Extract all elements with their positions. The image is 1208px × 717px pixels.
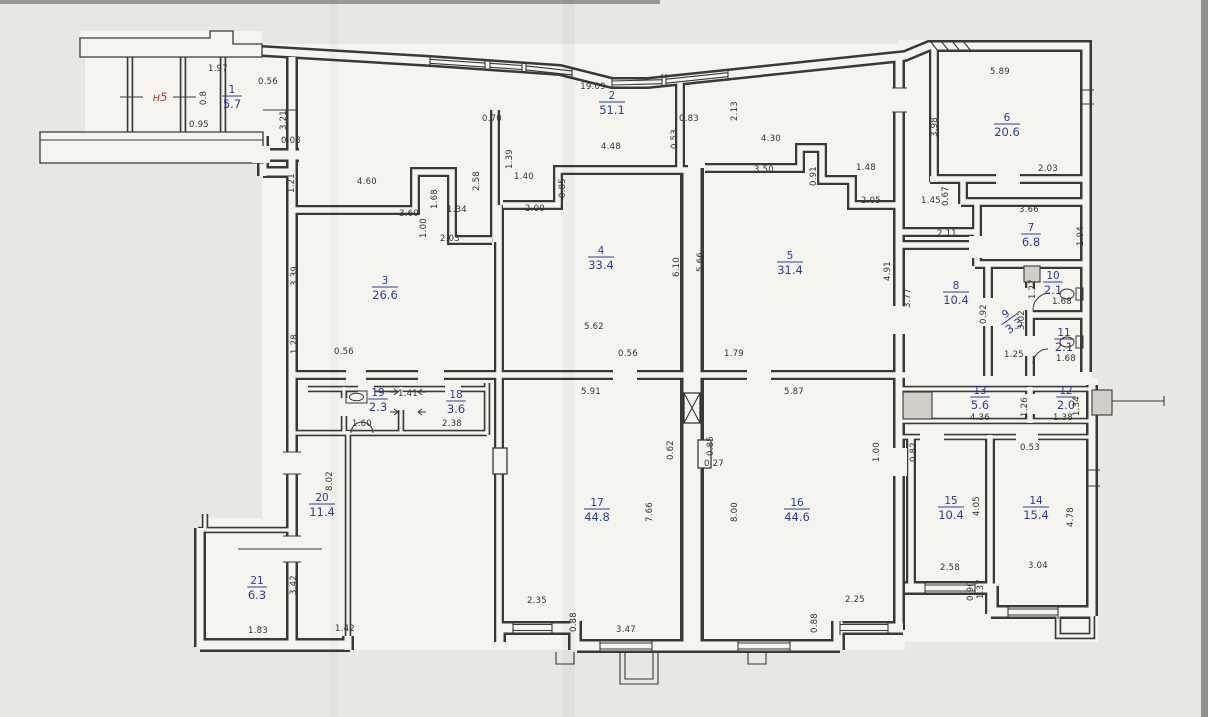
dim-label: 0.85 <box>558 178 568 198</box>
dim-label: 0.67 <box>941 186 951 206</box>
room-area: 10.4 <box>943 293 969 307</box>
dim-label: 0.56 <box>618 349 638 359</box>
room-number: 2 <box>609 90 616 102</box>
room-number: 10 <box>1046 270 1059 282</box>
dim-label: 7.66 <box>645 502 655 522</box>
dim-label: 5.62 <box>584 322 604 332</box>
dim-label: 0.70 <box>482 114 502 124</box>
room-area: 2.0 <box>1057 398 1075 412</box>
dim-label: 1.39 <box>505 149 515 169</box>
room-number: 7 <box>1028 222 1035 234</box>
room-area: 44.6 <box>784 510 810 524</box>
dim-label: 3.04 <box>1028 561 1048 571</box>
room-number: 6 <box>1004 112 1011 124</box>
dim-label: 0.83 <box>679 114 699 124</box>
room-number: 4 <box>598 245 605 257</box>
room-area: 33.4 <box>588 258 614 272</box>
dim-label: 0.88 <box>810 613 820 633</box>
dim-label: 1.97 <box>208 64 228 74</box>
entrance-label: н5 <box>153 90 168 104</box>
dim-label: 0.27 <box>704 459 724 469</box>
dim-label: 1.34 <box>447 205 467 215</box>
room-number: 5 <box>787 250 794 262</box>
room-number: 3 <box>382 275 389 287</box>
dim-label: 1.25 <box>1004 350 1024 360</box>
room-area: 2.1 <box>1055 340 1073 354</box>
dim-label: 0.56 <box>258 77 278 87</box>
dim-label: 1.94 <box>1076 226 1086 246</box>
dim-label: 4.91 <box>883 261 893 281</box>
dim-label: 2.11 <box>937 229 957 239</box>
dim-label: 2.38 <box>442 419 462 429</box>
dim-label: 2.58 <box>472 171 482 191</box>
dim-label: 0.82 <box>909 442 919 462</box>
dim-label: 3.21 <box>279 110 289 130</box>
dim-label: 0.53 <box>670 129 680 149</box>
annotations: н5 <box>153 90 168 104</box>
room-number: 21 <box>250 575 263 587</box>
room-area: 11.4 <box>309 505 335 519</box>
dim-label: 1.48 <box>856 163 876 173</box>
dim-label: 1.45 <box>921 196 941 206</box>
dim-label: 5.89 <box>990 67 1010 77</box>
room-number: 15 <box>944 495 957 507</box>
room-number: 19 <box>371 387 384 399</box>
dim-label: 1.28 <box>290 334 300 354</box>
dim-label: 3.47 <box>616 625 636 635</box>
dim-label: 1.79 <box>724 349 744 359</box>
dim-label: 0.08 <box>281 136 301 146</box>
room-area: 5.7 <box>223 97 241 111</box>
room-area: 51.1 <box>599 103 625 117</box>
dim-label: 4.60 <box>357 177 377 187</box>
dim-label: 2.05 <box>861 196 881 206</box>
dim-label: 0.92 <box>979 304 989 324</box>
dim-label: 2.25 <box>845 595 865 605</box>
dim-label: 0.95 <box>189 120 209 130</box>
dim-label: 2.03 <box>440 234 460 244</box>
dim-label: 1.41 <box>398 389 418 399</box>
dim-label: 3.60 <box>399 209 419 219</box>
floor-fill <box>80 31 1098 650</box>
dim-label: 4.78 <box>1066 507 1076 527</box>
dim-label: 1.40 <box>514 172 534 182</box>
dim-label: 0.90 <box>966 581 976 601</box>
dim-label: 5.66 <box>696 252 706 272</box>
room-area: 10.4 <box>938 508 964 522</box>
room-number: 1 <box>229 84 236 96</box>
dim-label: 6.10 <box>672 257 682 277</box>
dim-label: 2.00 <box>525 204 545 214</box>
dim-label: 3.77 <box>903 288 913 308</box>
dim-label: 5.87 <box>784 387 804 397</box>
dim-label: 1.37 <box>976 579 986 599</box>
dim-label: 5.91 <box>581 387 601 397</box>
dim-label: 0.88 <box>569 612 579 632</box>
room-number: 14 <box>1029 495 1043 507</box>
dim-label: 3.50 <box>754 165 774 175</box>
dim-label: 1.68 <box>1052 297 1072 307</box>
dim-label: 4.48 <box>601 142 621 152</box>
room-area: 20.6 <box>994 125 1020 139</box>
dim-label: 0.8 <box>199 91 209 105</box>
dim-label: 1.00 <box>419 218 429 238</box>
scanned-floor-plan-page: 1.970.560.80.950.083.211.2119.092.130.70… <box>0 0 1208 717</box>
porch-band <box>40 132 263 163</box>
dim-label: 3.98 <box>930 117 940 137</box>
dim-label: 1.68 <box>430 189 440 209</box>
dim-label: 2.03 <box>1038 164 1058 174</box>
dim-label: 1.83 <box>248 626 268 636</box>
dim-label: 4.30 <box>761 134 781 144</box>
side-entry-block <box>1092 390 1112 415</box>
dim-label: 0.85 <box>706 436 716 456</box>
room-area: 44.8 <box>584 510 610 524</box>
dim-label: 0.56 <box>334 347 354 357</box>
facade-protrusions <box>556 652 766 684</box>
entry-shaft-block <box>903 392 932 419</box>
room-number: 16 <box>790 497 804 509</box>
room-number: 17 <box>590 497 603 509</box>
dim-label: 1.60 <box>352 419 372 429</box>
room-area: 2.1 <box>1044 283 1062 297</box>
dim-label: 8.00 <box>730 502 740 522</box>
room-number: 20 <box>315 492 328 504</box>
room-area: 2.3 <box>369 400 387 414</box>
wall-recess-17 <box>493 448 507 474</box>
dim-label: 4.36 <box>970 413 990 423</box>
room-number: 11 <box>1057 327 1070 339</box>
room-area: 3.6 <box>447 402 465 416</box>
dim-label: 1.27 <box>1028 279 1038 299</box>
dim-label: 0.91 <box>809 166 819 186</box>
dim-label: 2.13 <box>730 101 740 121</box>
dim-label: 2.35 <box>527 596 547 606</box>
room-number: 8 <box>953 280 960 292</box>
room-area: 15.4 <box>1023 508 1049 522</box>
room-number: 13 <box>973 385 986 397</box>
dim-label: 1.42 <box>335 624 355 634</box>
floor-plan-svg: 1.970.560.80.950.083.211.2119.092.130.70… <box>0 0 1208 717</box>
room-area: 5.6 <box>971 398 989 412</box>
dim-label: 1.68 <box>1056 354 1076 364</box>
dim-label: 4.05 <box>972 496 982 516</box>
dim-label: 19.09 <box>580 82 606 92</box>
dim-label: 8.02 <box>325 471 335 491</box>
room-number: 12 <box>1059 385 1072 397</box>
room-number: 18 <box>449 389 462 401</box>
dim-label: 0.53 <box>1020 443 1040 453</box>
dim-label: 0.62 <box>666 440 676 460</box>
dim-label: 1.26 <box>1020 397 1030 417</box>
room-area: 31.4 <box>777 263 803 277</box>
dim-label: 3.66 <box>1019 205 1039 215</box>
room-area: 6.8 <box>1022 235 1040 249</box>
dim-label: 2.58 <box>940 563 960 573</box>
dim-label: 1.38 <box>1053 413 1073 423</box>
dim-label: 3.39 <box>290 266 300 286</box>
room-area: 26.6 <box>372 288 398 302</box>
dim-label: 1.21 <box>287 173 297 193</box>
dim-label: 1.00 <box>872 442 882 462</box>
room-area: 6.3 <box>248 588 266 602</box>
dim-label: 3.42 <box>289 575 299 595</box>
